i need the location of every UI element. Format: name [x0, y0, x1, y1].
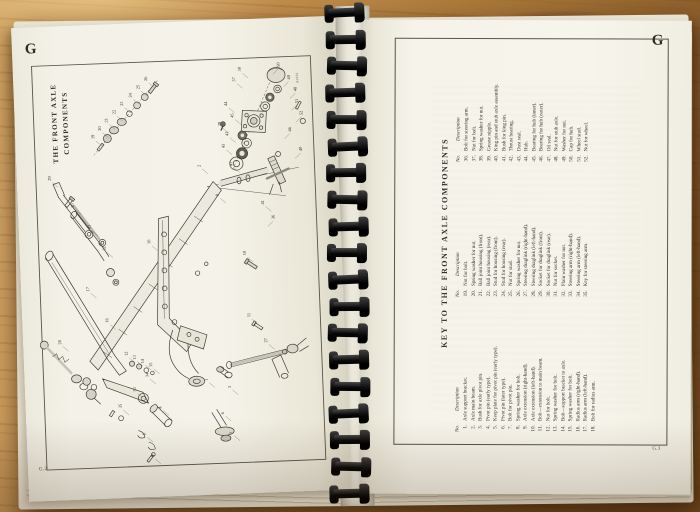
figure-code: A3051 [295, 72, 299, 83]
part-number: 33 [132, 386, 137, 391]
part-number: 1 [204, 379, 209, 381]
part-number: 51 [294, 99, 299, 104]
part-number: 46 [287, 126, 292, 131]
part-number: 47 [228, 161, 233, 166]
binding-tooth [327, 243, 367, 263]
part-number: 24 [128, 92, 133, 97]
binding-tooth [331, 456, 371, 477]
part-number: 39 [217, 121, 222, 126]
part-number: 26 [143, 76, 148, 81]
binding-tooth [324, 2, 365, 24]
part-number: 50 [276, 62, 281, 67]
desk-scene: G [0, 0, 700, 512]
part-number: 35 [118, 403, 123, 408]
binding-tooth [327, 189, 367, 210]
binding-tooth [330, 377, 370, 397]
binding-tooth [328, 403, 369, 425]
binding-tooth [328, 323, 368, 344]
part-number: 22 [111, 110, 116, 115]
diagram-leader-lines [48, 68, 314, 467]
part-number: 31 [87, 225, 92, 230]
part-number: 18 [242, 250, 247, 255]
part-number: 2 [196, 165, 201, 167]
spiral-bound-manual: G [5, 0, 696, 512]
binding-tooth [328, 269, 369, 291]
binding-tooth [326, 30, 366, 50]
part-number: 37 [231, 76, 236, 81]
part-number: 36 [270, 214, 275, 219]
binding-tooth [328, 216, 369, 237]
part-number: 6 [220, 411, 225, 414]
page-number-left: G.2 [39, 467, 47, 472]
key-row: 18.Bolt for radius arm. [590, 318, 598, 438]
key-title: KEY TO THE FRONT AXLE COMPONENTS [439, 48, 449, 438]
section-letter-right: G [652, 33, 664, 50]
spiral-comb-binding [323, 2, 374, 510]
key-table-rotated: KEY TO THE FRONT AXLE COMPONENTS No.Desc… [439, 48, 612, 439]
part-number: 14 [140, 358, 145, 363]
part-number: 16 [104, 317, 109, 322]
part-number: 11 [246, 313, 251, 317]
key-column: No.Description19.Nut for bolt.20.Spring … [455, 183, 598, 303]
part-number: 3 [227, 385, 232, 388]
part-number: 23 [119, 101, 124, 106]
part-number: 45 [229, 112, 234, 117]
part-number: 17 [85, 286, 90, 291]
binding-tooth [330, 430, 370, 450]
part-number: 28 [57, 339, 62, 344]
part-number: 13 [132, 354, 137, 359]
key-column: No.Description36.Bolt for steering arm.3… [455, 48, 598, 168]
binding-tooth [327, 110, 367, 130]
binding-tooth [329, 350, 370, 371]
part-number: 48 [292, 86, 297, 91]
part-number: 12 [124, 351, 129, 356]
part-number: 42 [224, 131, 229, 136]
part-number: 38 [237, 66, 242, 71]
part-number: 41 [260, 200, 265, 205]
part-number: 19 [90, 134, 95, 139]
right-page: G KEY TO THE FRONT AXLE COMPONENTS No.De… [359, 20, 692, 495]
key-row: 35.Key for steering arm. [583, 183, 591, 303]
key-columns: No.Description1.Axle support bracket.2.A… [454, 48, 598, 438]
page-number-right: G.3 [652, 447, 660, 452]
part-number: 4 [158, 406, 163, 409]
binding-tooth [329, 483, 370, 504]
part-number: 49 [286, 74, 291, 79]
binding-tooth [326, 163, 366, 183]
part-number: 32 [101, 246, 106, 251]
part-number: 15 [148, 362, 153, 367]
part-number: 52 [298, 111, 303, 116]
part-number: 40 [298, 146, 303, 151]
left-page: G [11, 16, 351, 502]
diagram-part-numbers: 1234567891011121314151617181920212223242… [43, 61, 317, 461]
part-number: 43 [221, 143, 226, 148]
diagram-title: THE FRONT AXLE COMPONENTS [48, 76, 74, 171]
part-number: 20 [97, 126, 102, 131]
key-row: 52.Nut for wheel. [583, 48, 591, 168]
part-number: 27 [263, 337, 268, 342]
part-number: 25 [135, 84, 140, 89]
binding-tooth [329, 296, 369, 316]
binding-tooth [327, 136, 368, 158]
binding-tooth [327, 56, 367, 77]
binding-tooth [325, 83, 366, 104]
key-column: No.Description1.Axle support bracket.2.A… [454, 318, 597, 438]
part-number: 29 [47, 175, 52, 180]
diagram-parts [30, 66, 318, 466]
part-number: 21 [104, 118, 109, 123]
part-number: 44 [223, 101, 228, 106]
part-number: 10 [146, 239, 151, 244]
